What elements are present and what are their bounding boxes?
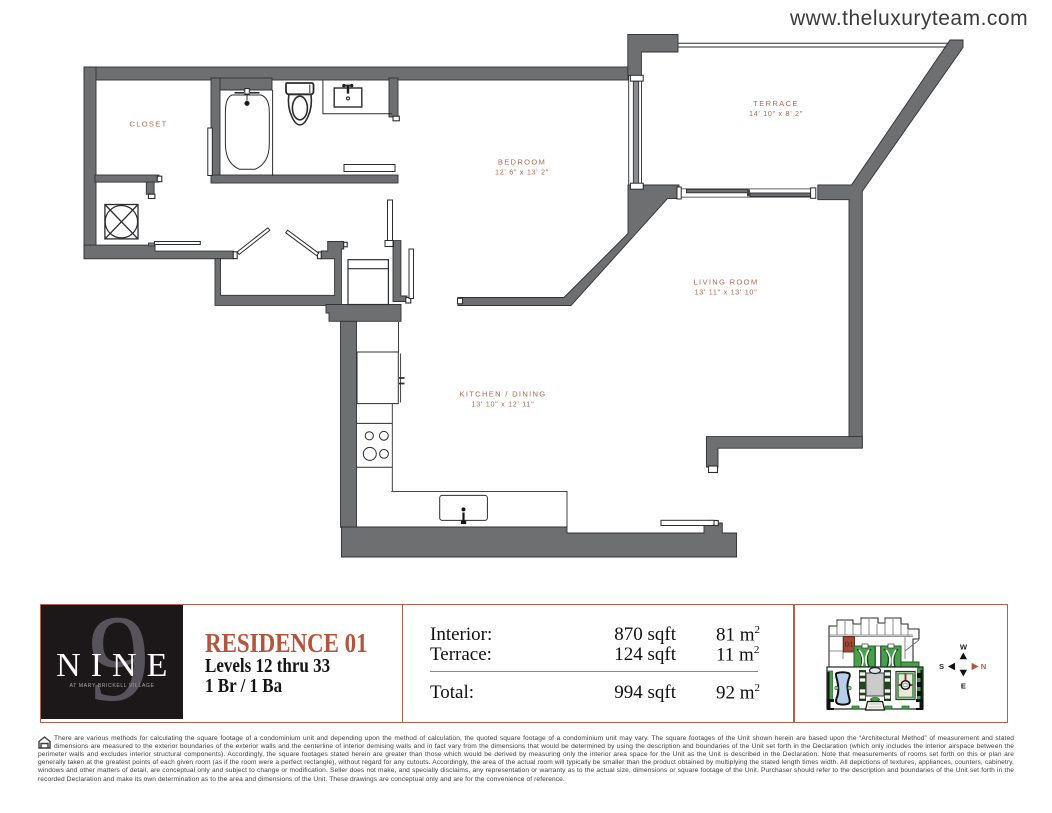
svg-text:12' 6" x 13' 2": 12' 6" x 13' 2" [495,168,549,177]
svg-text:KITCHEN / DINING: KITCHEN / DINING [459,390,546,399]
svg-text:TERRACE: TERRACE [753,99,798,108]
svg-text:W: W [959,642,967,651]
svg-text:S: S [938,662,943,671]
svg-text:LIVING ROOM: LIVING ROOM [694,278,759,287]
svg-text:13' 11" x 13' 10": 13' 11" x 13' 10" [695,288,758,297]
svg-text:13' 10" x 12' 11": 13' 10" x 12' 11" [472,400,535,409]
svg-text:BEDROOM: BEDROOM [498,158,546,167]
svg-text:14' 10" x 8' 2": 14' 10" x 8' 2" [749,109,803,118]
svg-text:N: N [980,662,985,671]
svg-text:E: E [960,681,965,690]
svg-text:CLOSET: CLOSET [129,120,167,129]
svg-text:01: 01 [845,639,854,649]
